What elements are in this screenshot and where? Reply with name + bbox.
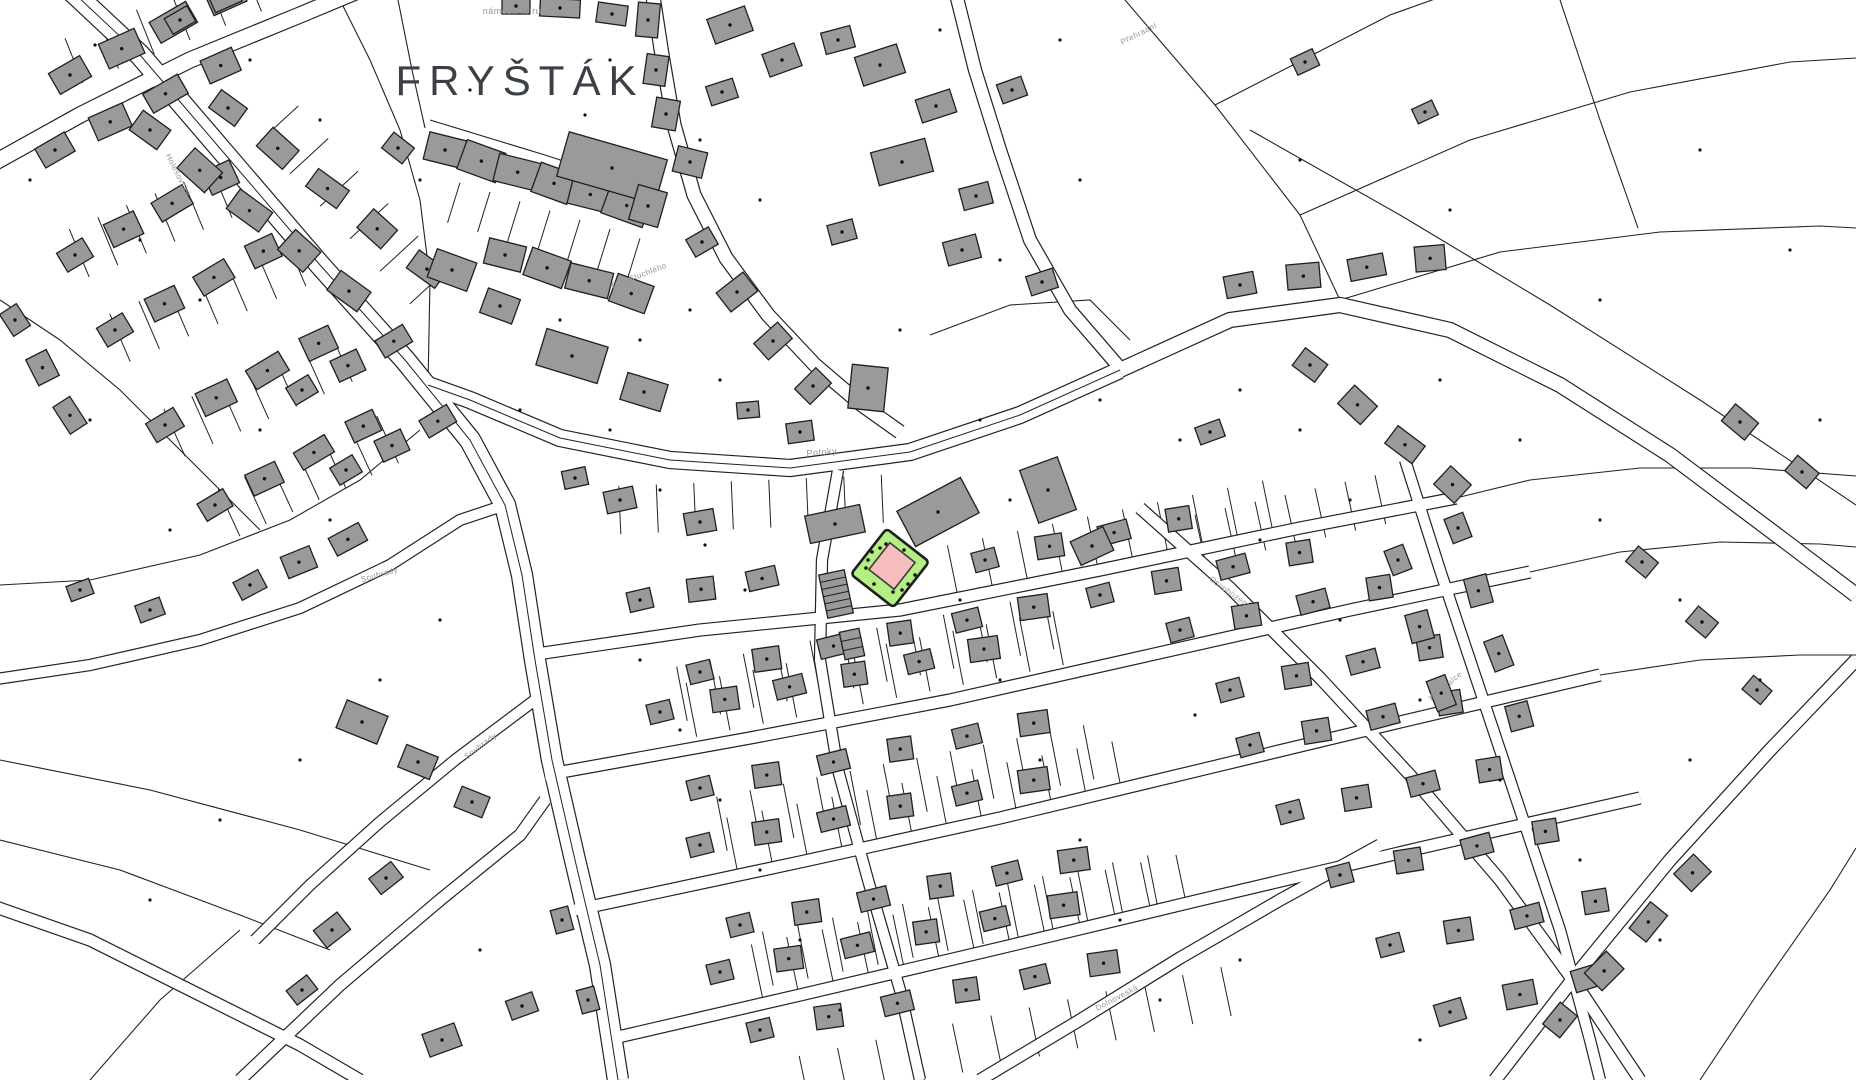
building-dot xyxy=(618,498,621,501)
parcel-dot xyxy=(758,868,761,871)
building-dot xyxy=(589,193,592,196)
parcel-dot xyxy=(688,308,691,311)
parcel-dot xyxy=(958,598,961,601)
tree-dot xyxy=(902,548,906,552)
building-dot xyxy=(699,588,702,591)
building-dot xyxy=(1518,993,1521,996)
building-dot xyxy=(1032,778,1035,781)
parcel-dot xyxy=(1818,418,1821,421)
building-dot xyxy=(787,957,790,960)
building-dot xyxy=(1298,551,1301,554)
building-dot xyxy=(993,917,996,920)
building-dot xyxy=(654,68,657,71)
building-dot xyxy=(638,598,641,601)
building-dot xyxy=(642,390,645,393)
building-dot xyxy=(1046,488,1049,491)
parcel-dot xyxy=(318,118,321,121)
building-dot xyxy=(470,800,473,803)
building-dot xyxy=(163,423,166,426)
building-dot xyxy=(688,160,691,163)
building-dot xyxy=(1488,768,1491,771)
building-dot xyxy=(416,760,419,763)
building-dot xyxy=(392,339,395,342)
building-dot xyxy=(1647,920,1650,923)
building-dot xyxy=(109,120,112,123)
parcel-dot xyxy=(1008,498,1011,501)
building-dot xyxy=(170,202,173,205)
building-dot xyxy=(1338,873,1341,876)
building-dot xyxy=(266,369,269,372)
building-dot xyxy=(113,328,116,331)
parcel-dot xyxy=(1098,398,1101,401)
building-dot xyxy=(698,520,701,523)
building-dot xyxy=(148,608,151,611)
building-dot xyxy=(347,289,350,292)
building-dot xyxy=(1090,544,1093,547)
building-dot xyxy=(939,884,942,887)
parcel-dot xyxy=(1758,678,1761,681)
building-dot xyxy=(390,444,393,447)
building-dot xyxy=(900,160,903,163)
building-dot xyxy=(73,253,76,256)
parcel-dot xyxy=(518,408,521,411)
building-dot xyxy=(1005,871,1008,874)
building-dot xyxy=(738,923,741,926)
building-dot xyxy=(1475,844,1478,847)
building-dot xyxy=(924,930,927,933)
building-dot xyxy=(586,998,589,1001)
parcel-dot xyxy=(1518,438,1521,441)
parcel-dot xyxy=(218,818,221,821)
building-dot xyxy=(1381,715,1384,718)
building-dot xyxy=(896,1002,899,1005)
parcel-dot xyxy=(1438,378,1441,381)
parcel-dot xyxy=(248,58,251,61)
building-dot xyxy=(840,230,843,233)
building-dot xyxy=(480,159,483,162)
parcel-dot xyxy=(1788,248,1791,251)
building-dot xyxy=(1755,688,1758,691)
building-dot xyxy=(198,169,201,172)
building-dot xyxy=(276,147,279,150)
parcel-dot xyxy=(1658,938,1661,941)
building-dot xyxy=(520,1004,523,1007)
parcel-dot xyxy=(1348,498,1351,501)
building-dot xyxy=(226,106,229,109)
building-dot xyxy=(788,685,791,688)
building-dot xyxy=(1033,975,1036,978)
parcel-dot xyxy=(1598,298,1601,301)
building-dot xyxy=(558,6,561,9)
building-dot xyxy=(1418,625,1421,628)
building-dot xyxy=(974,194,977,197)
building-dot xyxy=(1303,60,1306,63)
building-dot xyxy=(832,760,835,763)
tree-dot xyxy=(866,558,870,562)
building-dot xyxy=(798,430,801,433)
building-dot xyxy=(1302,274,1305,277)
parcel-dot xyxy=(558,318,561,321)
building-dot xyxy=(1497,652,1500,655)
parcel-dot xyxy=(1698,148,1701,151)
building-dot xyxy=(1288,810,1291,813)
building-dot xyxy=(545,266,548,269)
building-dot xyxy=(213,503,216,506)
tree-dot xyxy=(864,566,868,570)
parcel-dot xyxy=(378,678,381,681)
building-dot xyxy=(698,670,701,673)
building-dot xyxy=(646,18,649,21)
parcel-dot xyxy=(938,28,941,31)
building-dot xyxy=(362,424,365,427)
town-title: FRYŠTÁK xyxy=(396,57,645,104)
building-dot xyxy=(215,396,218,399)
building-dot xyxy=(832,644,835,647)
building-dot xyxy=(720,90,723,93)
building-dot xyxy=(1165,579,1168,582)
building-dot xyxy=(1378,586,1381,589)
building-dot xyxy=(936,510,939,513)
building-dot xyxy=(68,73,71,76)
parcel-dot xyxy=(1158,998,1161,1001)
building-dot xyxy=(570,354,573,357)
building-dot xyxy=(1295,674,1298,677)
tree-dot xyxy=(870,550,874,554)
building-dot xyxy=(1800,470,1803,473)
building-dot xyxy=(1062,904,1065,907)
parcel-dot xyxy=(1118,918,1121,921)
building-dot xyxy=(1388,943,1391,946)
building-dot xyxy=(120,47,123,50)
building-dot xyxy=(899,747,902,750)
building-dot xyxy=(1428,646,1431,649)
building-dot xyxy=(965,791,968,794)
building-dot xyxy=(723,698,726,701)
building-dot xyxy=(1245,614,1248,617)
building-dot xyxy=(765,657,768,660)
building-dot xyxy=(1477,589,1480,592)
building-dot xyxy=(1361,660,1364,663)
building-dot xyxy=(1544,830,1547,833)
building-dot xyxy=(1072,858,1075,861)
parcel-dot xyxy=(978,418,981,421)
building-dot xyxy=(68,414,71,417)
building-dot xyxy=(1248,743,1251,746)
building-dot xyxy=(1308,363,1311,366)
building-dot xyxy=(163,302,166,305)
building-dot xyxy=(263,477,266,480)
building-dot xyxy=(1231,565,1234,568)
parcel-dot xyxy=(1578,858,1581,861)
building-dot xyxy=(1048,545,1051,548)
building-dot xyxy=(934,104,937,107)
building-dot xyxy=(964,988,967,991)
parcel-dot xyxy=(138,238,141,241)
building-dot xyxy=(1456,526,1459,529)
building-dot xyxy=(758,1028,761,1031)
building-dot xyxy=(646,204,649,207)
parcel-dot xyxy=(198,298,201,301)
building-dot xyxy=(13,318,16,321)
building-dot xyxy=(1403,443,1406,446)
parcel-dot xyxy=(1238,958,1241,961)
parcel-dot xyxy=(168,528,171,531)
building-dot xyxy=(1040,280,1043,283)
building-dot xyxy=(1032,605,1035,608)
building-dot xyxy=(1356,403,1359,406)
parcel-dot xyxy=(1258,538,1261,541)
parcel-dot xyxy=(1298,158,1301,161)
building-dot xyxy=(1177,517,1180,520)
building-dot xyxy=(1228,688,1231,691)
building-dot xyxy=(625,204,628,207)
parcel-dot xyxy=(998,258,1001,261)
building-dot xyxy=(735,290,738,293)
map-canvas: náměstí MíruHolešovskáP. I. StuchléhoPot… xyxy=(0,0,1856,1080)
parcel-dot xyxy=(298,758,301,761)
parcel-dot xyxy=(28,178,31,181)
parcel-dot xyxy=(1298,428,1301,431)
building-dot xyxy=(178,18,181,21)
building-dot xyxy=(425,267,428,270)
building-dot xyxy=(1525,914,1528,917)
parcel-dot xyxy=(1678,598,1681,601)
building-dot xyxy=(219,64,222,67)
building-dot xyxy=(450,268,453,271)
building-dot xyxy=(833,522,836,525)
building-dot xyxy=(1457,929,1460,932)
parcel-dot xyxy=(478,948,481,951)
building-dot xyxy=(164,92,167,95)
tree-dot xyxy=(878,546,882,550)
building-dot xyxy=(1558,1018,1561,1021)
building-dot xyxy=(1208,430,1211,433)
building-dot xyxy=(330,928,333,931)
building-dot xyxy=(503,253,506,256)
building-dot xyxy=(700,240,703,243)
building-dot xyxy=(872,897,875,900)
parcel-dot xyxy=(1688,758,1691,761)
building-dot xyxy=(965,618,968,621)
building-dot xyxy=(658,710,661,713)
parcel-dot xyxy=(658,488,661,491)
parcel-dot xyxy=(608,428,611,431)
parcel-dot xyxy=(1418,1038,1421,1041)
building-dot xyxy=(878,63,881,66)
building-dot xyxy=(78,588,81,591)
parcel-dot xyxy=(698,138,701,141)
building-dot xyxy=(664,112,667,115)
parcel-dot xyxy=(1078,838,1081,841)
tree-dot xyxy=(872,582,876,586)
building-dot xyxy=(1311,600,1314,603)
building-dot xyxy=(1421,782,1424,785)
parcel-dot xyxy=(1038,758,1041,761)
parcel-dot xyxy=(758,198,761,201)
building-dot xyxy=(317,342,320,345)
tree-dot xyxy=(891,590,895,594)
building-dot xyxy=(982,647,985,650)
parcel-dot xyxy=(1498,778,1501,781)
building-dot xyxy=(396,146,399,149)
building-dot xyxy=(212,276,215,279)
building-dot xyxy=(248,209,251,212)
building-dot xyxy=(1355,796,1358,799)
building-dot xyxy=(1365,265,1368,268)
building-dot xyxy=(836,38,839,41)
parcel-dot xyxy=(998,678,1001,681)
tree-dot xyxy=(906,582,910,586)
building-dot xyxy=(300,388,303,391)
street-label: náměstí Míru xyxy=(483,6,542,16)
building-dot xyxy=(610,166,613,169)
building-dot xyxy=(1098,593,1101,596)
building-dot xyxy=(436,419,439,422)
parcel-dot xyxy=(838,1008,841,1011)
building-dot xyxy=(698,843,701,846)
building-dot xyxy=(516,171,519,174)
building-dot xyxy=(1517,715,1520,718)
building-dot xyxy=(1112,531,1115,534)
building-dot xyxy=(827,1015,830,1018)
building-dot xyxy=(262,249,265,252)
building-dot xyxy=(771,339,774,342)
building-dot xyxy=(1315,729,1318,732)
building-dot xyxy=(297,560,300,563)
parcel-dot xyxy=(1078,178,1081,181)
parcel-dot xyxy=(1418,698,1421,701)
building-dot xyxy=(443,148,446,151)
building-dot xyxy=(587,279,590,282)
building-dot xyxy=(1640,560,1643,563)
parcel-dot xyxy=(898,328,901,331)
building-dot xyxy=(780,58,783,61)
building-dot xyxy=(965,734,968,737)
parcel-dot xyxy=(678,728,681,731)
parcel-dot xyxy=(258,428,261,431)
building-dot xyxy=(298,249,301,252)
building-dot xyxy=(856,944,859,947)
cadastral-map-page: náměstí MíruHolešovskáP. I. StuchléhoPot… xyxy=(0,0,1856,1080)
tree-dot xyxy=(900,588,904,592)
parcel-dot xyxy=(328,518,331,521)
building-dot xyxy=(122,227,125,230)
parcel-dot xyxy=(638,658,641,661)
building-dot xyxy=(718,970,721,973)
building-dot xyxy=(1178,628,1181,631)
building-dot xyxy=(760,577,763,580)
building-dot xyxy=(384,876,387,879)
building-dot xyxy=(312,451,315,454)
parcel-dot xyxy=(1448,208,1451,211)
building-dot xyxy=(917,660,920,663)
building-dot xyxy=(300,988,303,991)
building-dot xyxy=(498,304,501,307)
building-dot xyxy=(1423,110,1426,113)
parcel-dot xyxy=(88,418,91,421)
parcel-dot xyxy=(638,338,641,341)
parcel-dot xyxy=(93,43,96,46)
building-dot xyxy=(1700,620,1703,623)
parcel-dot xyxy=(148,898,151,901)
parcel-dot xyxy=(743,588,746,591)
building-dot xyxy=(346,364,349,367)
building-dot xyxy=(899,804,902,807)
parcel-dot xyxy=(1598,518,1601,521)
parcel-dot xyxy=(718,378,721,381)
building-dot xyxy=(573,476,576,479)
building-dot xyxy=(1594,900,1597,903)
building-dot xyxy=(552,182,555,185)
building-dot xyxy=(440,1038,443,1041)
tree-dot xyxy=(913,573,917,577)
building-dot xyxy=(148,128,151,131)
building-dot xyxy=(866,386,869,389)
building-dot xyxy=(1602,969,1605,972)
parcel-dot xyxy=(798,938,801,941)
building-dot xyxy=(360,720,363,723)
building-dot xyxy=(630,292,633,295)
building-dot xyxy=(1691,871,1694,874)
building-dot xyxy=(1032,721,1035,724)
building-dot xyxy=(1010,88,1013,91)
building-dot xyxy=(811,384,814,387)
parcel-dot xyxy=(703,543,706,546)
building-dot xyxy=(1738,420,1741,423)
parcel-dot xyxy=(1178,438,1181,441)
building-dot xyxy=(1428,257,1431,260)
building-dot xyxy=(1396,558,1399,561)
building-dot xyxy=(960,248,963,251)
building-dot xyxy=(376,227,379,230)
parcel-dot xyxy=(718,798,721,801)
building-dot xyxy=(746,408,749,411)
building-dot xyxy=(1407,859,1410,862)
building-dot xyxy=(983,558,986,561)
building-dot xyxy=(1448,1010,1451,1013)
parcel-dot xyxy=(1193,713,1196,716)
building-dot xyxy=(248,583,251,586)
parcel-dot xyxy=(418,178,421,181)
parcel-dot xyxy=(1338,618,1341,621)
building-dot xyxy=(853,673,856,676)
building-dot xyxy=(765,830,768,833)
parcel-dot xyxy=(438,618,441,621)
building-dot xyxy=(346,538,349,541)
building-dot xyxy=(326,187,329,190)
building-dot xyxy=(610,12,613,15)
building-dot xyxy=(728,23,731,26)
parcel-dot xyxy=(1058,38,1061,41)
parcel-dot xyxy=(1238,388,1241,391)
building-dot xyxy=(698,786,701,789)
building-dot xyxy=(560,918,563,921)
building-dot xyxy=(344,468,347,471)
building-dot xyxy=(1451,483,1454,486)
building-dot xyxy=(1238,283,1241,286)
building-dot xyxy=(1102,962,1105,965)
building-dot xyxy=(41,366,44,369)
building-dot xyxy=(53,148,56,151)
building-dot xyxy=(805,910,808,913)
building-dot xyxy=(765,773,768,776)
parcel-dot xyxy=(583,113,586,116)
building-dot xyxy=(899,631,902,634)
building-dot xyxy=(832,817,835,820)
